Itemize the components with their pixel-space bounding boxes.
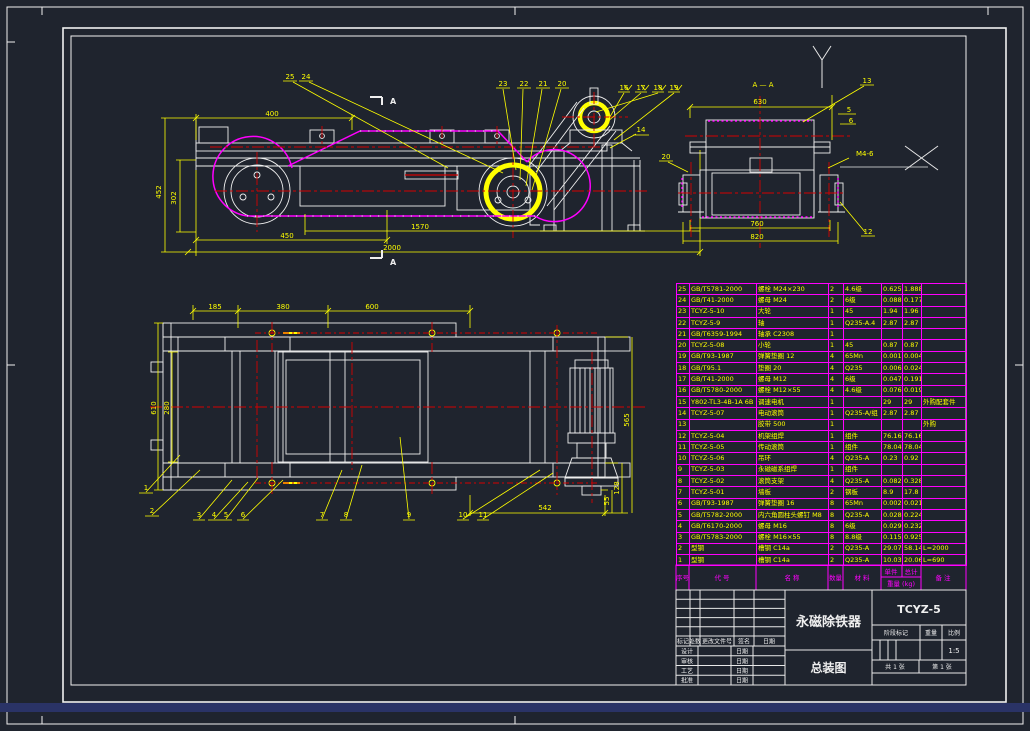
bom-row: 17GB/T41-2000螺母 M1246级0.04770.191: [677, 374, 967, 385]
leader-6: 6: [241, 511, 246, 519]
bom-cell-code: GB/T41-2000: [690, 374, 757, 385]
bom-row: 6GB/T93-1987弹簧垫圈 16865Mn0.002680.02144: [677, 498, 967, 509]
rev-header-mark: 标记: [677, 638, 689, 646]
leader-17: 17: [637, 84, 646, 92]
dim-185: 185: [208, 303, 221, 311]
bom-cell-material: 6级: [844, 521, 882, 532]
title-block-texts: 标记 处数 更改文件号 签名 日期 设计 日期 审核 日期 工艺 日期 批准 日…: [677, 603, 960, 685]
bom-cell-code: GB/T5780-2000: [690, 385, 757, 396]
bom-cell-material: 钢板: [844, 487, 882, 498]
bom-row: 4GB/T6170-2000螺母 M1686级0.0290.232: [677, 521, 967, 532]
bom-cell-total: 0.92: [903, 453, 922, 464]
bom-cell-total: 0.0045: [903, 351, 922, 362]
bom-cell-material: 45: [844, 340, 882, 351]
dim-128: 128: [613, 481, 621, 494]
bom-cell-material: Q235-A: [844, 453, 882, 464]
bom-row: 23TCYZ-5-10大轮1451.941.96: [677, 306, 967, 317]
bom-cell-qty: 4: [829, 363, 844, 374]
rev-header-sign: 签名: [738, 638, 750, 646]
bom-cell-name: 轴: [757, 317, 829, 328]
bom-cell-qty: 8: [829, 509, 844, 520]
bom-cell-code: 型钢: [690, 543, 757, 554]
model-number: TCYZ-5: [897, 603, 941, 616]
bom-cell-remark: [922, 317, 967, 328]
sheet-no: 第 1 张: [932, 663, 952, 671]
bom-cell-unit: 0.00268: [882, 498, 903, 509]
bom-cell-code: Y802-TL3-4B-1A 6B: [690, 396, 757, 407]
bom-cell-remark: [922, 521, 967, 532]
leader-20: 20: [558, 80, 567, 88]
bom-header-material: 材 料: [854, 573, 870, 582]
bom-cell-qty: 1: [829, 408, 844, 419]
bom-cell-unit: 0.23: [882, 453, 903, 464]
bom-row: 3GB/T5783-2000螺栓 M16×5588.8级0.11570.9256: [677, 532, 967, 543]
sign-role-check: 审核: [681, 657, 693, 665]
bom-cell-no: 6: [677, 498, 690, 509]
bom-cell-unit: 0.87: [882, 340, 903, 351]
bom-cell-code: TCYZ-5-06: [690, 453, 757, 464]
bom-cell-no: 2: [677, 543, 690, 554]
bom-cell-code: TCYZ-5-03: [690, 464, 757, 475]
bom-cell-remark: [922, 306, 967, 317]
bom-cell-no: 23: [677, 306, 690, 317]
bom-cell-qty: 1: [829, 430, 844, 441]
bom-cell-no: 10: [677, 453, 690, 464]
bom-cell-remark: [922, 509, 967, 520]
bom-cell-material: 6级: [844, 295, 882, 306]
bom-cell-unit: [882, 329, 903, 340]
dim-bottom-1570: 1570: [411, 223, 429, 231]
bom-cell-material: [844, 396, 882, 407]
bom-cell-material: 组件: [844, 442, 882, 453]
bom-cell-name: 螺栓 M24×230: [757, 284, 829, 295]
leader-20b: 20: [662, 153, 671, 161]
bom-cell-qty: 1: [829, 464, 844, 475]
thread-note: M4-6: [856, 150, 874, 158]
bom-cell-qty: 4: [829, 385, 844, 396]
dim-bottom-2000: 2000: [383, 244, 401, 252]
bom-cell-no: 7: [677, 487, 690, 498]
bom-cell-remark: [922, 442, 967, 453]
leader-23: 23: [499, 80, 508, 88]
bom-cell-total: 0.02144: [903, 498, 922, 509]
bom-cell-name: 弹簧垫圈 12: [757, 351, 829, 362]
bom-cell-name: 螺母 M24: [757, 295, 829, 306]
bom-cell-qty: 1: [829, 317, 844, 328]
stage-label: 阶段标记: [884, 629, 908, 637]
bom-cell-no: 4: [677, 521, 690, 532]
section-letter-top: A: [390, 97, 397, 106]
bom-cell-unit: 0.1157: [882, 532, 903, 543]
bom-cell-no: 17: [677, 374, 690, 385]
bom-cell-total: 0.87: [903, 340, 922, 351]
bom-cell-code: TCYZ-5-04: [690, 430, 757, 441]
dim-6: 6: [849, 117, 854, 125]
bom-cell-total: 58.14: [903, 543, 922, 554]
bom-row: 9TCYZ-5-03永磁磁系组焊1组件: [677, 464, 967, 475]
bom-cell-name: 螺母 M12: [757, 374, 829, 385]
bom-cell-total: 0.328: [903, 476, 922, 487]
bom-cell-no: 15: [677, 396, 690, 407]
sign-date-check: 日期: [736, 657, 748, 665]
bom-cell-no: 5: [677, 509, 690, 520]
bom-cell-name: 弹簧垫圈 16: [757, 498, 829, 509]
bom-cell-total: 76.168: [903, 430, 922, 441]
leader-4: 4: [212, 511, 217, 519]
leader-13: 13: [863, 77, 872, 85]
bom-cell-qty: 1: [829, 419, 844, 430]
plan-view-leader-lines: [139, 437, 553, 520]
bom-cell-qty: 4: [829, 374, 844, 385]
bom-cell-no: 19: [677, 351, 690, 362]
sign-role-process: 工艺: [681, 667, 693, 675]
bom-cell-total: 0.224: [903, 509, 922, 520]
bom-cell-code: GB/T5783-2000: [690, 532, 757, 543]
section-view-geometry: [678, 120, 845, 218]
bom-cell-qty: 4: [829, 351, 844, 362]
leader-24: 24: [302, 73, 311, 81]
bom-cell-remark: [922, 464, 967, 475]
bom-cell-material: [844, 329, 882, 340]
bom-cell-no: 1: [677, 555, 690, 566]
bom-cell-name: 机架组焊: [757, 430, 829, 441]
bom-cell-no: 14: [677, 408, 690, 419]
bom-cell-unit: 2.87: [882, 408, 903, 419]
bom-cell-name: 永磁磁系组焊: [757, 464, 829, 475]
bom-cell-material: 65Mn: [844, 498, 882, 509]
bom-cell-code: GB/T93-1987: [690, 351, 757, 362]
bom-header-total: 总计: [905, 567, 919, 576]
rev-header-date: 日期: [763, 638, 775, 646]
bom-cell-remark: [922, 295, 967, 306]
bom-cell-no: 25: [677, 284, 690, 295]
leader-10: 10: [459, 511, 468, 519]
bom-cell-material: 组件: [844, 430, 882, 441]
dim-610: 610: [150, 401, 158, 414]
drawing-name: 总装图: [810, 660, 846, 675]
leader-2: 2: [150, 507, 154, 515]
bom-cell-qty: 2: [829, 555, 844, 566]
bom-cell-code: TCYZ-5-10: [690, 306, 757, 317]
dim-left-inner: 302: [170, 191, 178, 204]
bom-cell-total: 20.06: [903, 555, 922, 566]
bom-cell-material: Q235-A.4: [844, 317, 882, 328]
bom-header-remark: 备 注: [935, 573, 951, 582]
bom-table: 25GB/T5781-2000螺栓 M24×23024.6级0.6251.888…: [676, 283, 967, 566]
bom-cell-qty: 8: [829, 498, 844, 509]
bom-row: 12TCYZ-5-04机架组焊1组件76.16876.168: [677, 430, 967, 441]
bom-cell-unit: 0.028: [882, 509, 903, 520]
bom-cell-material: 4.6级: [844, 284, 882, 295]
bom-cell-no: 16: [677, 385, 690, 396]
bom-row: 16GB/T5780-2000螺栓 M12×5544.6级0.0760.019: [677, 385, 967, 396]
bom-cell-name: 胶带 500: [757, 419, 829, 430]
bom-cell-unit: 29: [882, 396, 903, 407]
bom-cell-remark: [922, 476, 967, 487]
bom-cell-unit: 76.168: [882, 430, 903, 441]
bom-cell-qty: 8: [829, 521, 844, 532]
bom-cell-code: [690, 419, 757, 430]
bom-row: 2型钢槽钢 C14a2Q235-A29.0758.14L=2000: [677, 543, 967, 554]
bom-cell-remark: [922, 340, 967, 351]
bom-cell-no: 8: [677, 476, 690, 487]
section-letter-bottom: A: [390, 258, 397, 267]
bom-cell-unit: 0.076: [882, 385, 903, 396]
bom-cell-total: 0.191: [903, 374, 922, 385]
bom-cell-remark: [922, 385, 967, 396]
bom-cell-unit: 0.006: [882, 363, 903, 374]
cad-sheet: 400 452 302 450 1570 2000 25 24 23 22 21…: [0, 0, 1030, 731]
bom-cell-no: 12: [677, 430, 690, 441]
bom-cell-total: [903, 419, 922, 430]
dim-820: 820: [750, 233, 763, 241]
bom-cell-no: 3: [677, 532, 690, 543]
bom-cell-name: 小轮: [757, 340, 829, 351]
bom-row: 5GB/T5782-2000内六角圆柱头螺钉 M88Q235-A0.0280.2…: [677, 509, 967, 520]
bom-cell-remark: [922, 532, 967, 543]
bom-cell-material: 8.8级: [844, 532, 882, 543]
product-name: 永磁除铁器: [795, 614, 862, 630]
bom-cell-material: Q235-A: [844, 509, 882, 520]
bom-cell-remark: [922, 498, 967, 509]
bom-header-name: 名 称: [784, 573, 800, 582]
bom-cell-name: 内六角圆柱头螺钉 M8: [757, 509, 829, 520]
bom-cell-code: TCYZ-5-02: [690, 476, 757, 487]
bom-cell-qty: 1: [829, 340, 844, 351]
bom-row: 24GB/T41-2000螺母 M2426级0.08880.1776: [677, 295, 967, 306]
section-view-texts: A — A 630 5 6 760 820 13 20 12 M4-6: [662, 77, 874, 241]
bom-cell-qty: 2: [829, 284, 844, 295]
dim-565: 565: [623, 413, 631, 426]
bom-cell-name: 螺母 M16: [757, 521, 829, 532]
dim-542: 542: [538, 504, 551, 512]
leader-3: 3: [197, 511, 201, 519]
weight-label: 重量: [925, 629, 937, 637]
bom-cell-unit: 78.045: [882, 442, 903, 453]
bom-row: 22TCYZ-5-9轴1Q235-A.42.872.87: [677, 317, 967, 328]
bom-cell-total: 1.96: [903, 306, 922, 317]
bom-cell-name: 轴承 C2308: [757, 329, 829, 340]
bom-cell-no: 22: [677, 317, 690, 328]
rev-header-doc: 更改文件号: [702, 638, 732, 646]
bom-cell-material: 6级: [844, 374, 882, 385]
leader-9: 9: [407, 511, 411, 519]
bom-cell-remark: 外购配套件: [922, 396, 967, 407]
dim-top: 400: [265, 110, 278, 118]
bom-cell-remark: [922, 408, 967, 419]
bom-cell-material: Q235-A: [844, 555, 882, 566]
bom-cell-code: TCYZ-5-08: [690, 340, 757, 351]
bom-row: 7TCYZ-5-01墙板2钢板8.917.8: [677, 487, 967, 498]
bom-cell-qty: 2: [829, 543, 844, 554]
bom-cell-remark: 外购: [922, 419, 967, 430]
bom-cell-qty: 8: [829, 532, 844, 543]
bom-row: 14TCYZ-5-07电动滚筒1Q235-A/组2.872.87: [677, 408, 967, 419]
leader-5: 5: [224, 511, 228, 519]
leader-12: 12: [864, 228, 873, 236]
bom-cell-qty: 1: [829, 442, 844, 453]
bom-cell-material: [844, 419, 882, 430]
leader-1: 1: [144, 484, 148, 492]
leader-8: 8: [344, 511, 348, 519]
side-view-section-marks: [370, 97, 382, 258]
bom-cell-material: 4.6级: [844, 385, 882, 396]
bom-row: 10TCYZ-5-06吊环4Q235-A0.230.92: [677, 453, 967, 464]
bom-row: 1型钢槽钢 C14a2Q235-A10.0320.06L=690: [677, 555, 967, 566]
leader-19: 19: [670, 84, 679, 92]
bom-cell-name: 槽钢 C14a: [757, 555, 829, 566]
bom-cell-material: 65Mn: [844, 351, 882, 362]
y-mark-icon: [813, 46, 831, 88]
bom-cell-material: Q235-A: [844, 543, 882, 554]
x-mark-icon: [905, 146, 938, 170]
leader-22: 22: [520, 80, 529, 88]
bom-body: 25GB/T5781-2000螺栓 M24×23024.6级0.6251.888…: [677, 284, 967, 566]
bom-cell-material: 组件: [844, 464, 882, 475]
sign-date-design: 日期: [736, 648, 748, 656]
bom-cell-remark: [922, 329, 967, 340]
scale-label: 比例: [948, 629, 960, 637]
bom-cell-total: 0.9256: [903, 532, 922, 543]
bom-cell-name: 电动滚筒: [757, 408, 829, 419]
bom-cell-unit: 0.625: [882, 284, 903, 295]
scale-value: 1:5: [948, 647, 959, 655]
bom-header-no: 序号: [676, 573, 690, 582]
bom-row: 25GB/T5781-2000螺栓 M24×23024.6级0.6251.888: [677, 284, 967, 295]
sign-role-approve: 批准: [681, 677, 693, 685]
bom-cell-no: 24: [677, 295, 690, 306]
bom-cell-remark: L=690: [922, 555, 967, 566]
leader-16: 16: [620, 84, 629, 92]
dim-55: 55: [603, 497, 611, 506]
dim-5: 5: [847, 106, 851, 114]
bom-header-unit: 单件: [885, 567, 899, 576]
sheet-total: 共 1 张: [885, 663, 905, 671]
bom-cell-material: Q235-A/组: [844, 408, 882, 419]
bom-cell-remark: [922, 351, 967, 362]
bom-cell-name: 吊环: [757, 453, 829, 464]
bom-cell-unit: [882, 419, 903, 430]
bom-row: 13胶带 5001外购: [677, 419, 967, 430]
bom-cell-material: Q235-A: [844, 476, 882, 487]
bom-cell-total: 78.045: [903, 442, 922, 453]
bom-cell-qty: 4: [829, 453, 844, 464]
bom-cell-total: 0.019: [903, 385, 922, 396]
bom-cell-unit: 0.0888: [882, 295, 903, 306]
sign-role-design: 设计: [681, 648, 693, 656]
bom-cell-material: Q235: [844, 363, 882, 374]
bom-cell-name: 大轮: [757, 306, 829, 317]
bom-cell-material: 45: [844, 306, 882, 317]
bom-row: 8TCYZ-5-02滚筒支架4Q235-A0.0820.328: [677, 476, 967, 487]
bom-cell-remark: [922, 453, 967, 464]
bom-cell-code: TCYZ-5-07: [690, 408, 757, 419]
dim-600: 600: [365, 303, 378, 311]
bottom-blue-bar: [0, 703, 1030, 712]
bom-row: 18GB/T95.1垫圈 204Q2350.0060.024: [677, 363, 967, 374]
bom-cell-name: 螺栓 M16×55: [757, 532, 829, 543]
bom-cell-total: [903, 329, 922, 340]
bom-cell-remark: [922, 374, 967, 385]
bom-cell-code: GB/T6170-2000: [690, 521, 757, 532]
bom-cell-unit: 0.029: [882, 521, 903, 532]
bom-cell-total: 2.87: [903, 408, 922, 419]
bom-row: 11TCYZ-5-05传动滚筒1组件78.04578.045: [677, 442, 967, 453]
bom-cell-unit: 2.87: [882, 317, 903, 328]
leader-7: 7: [320, 511, 324, 519]
bom-cell-remark: L=2000: [922, 543, 967, 554]
section-title: A — A: [752, 81, 773, 89]
bom-cell-total: 0.024: [903, 363, 922, 374]
bom-cell-qty: 1: [829, 306, 844, 317]
sign-date-process: 日期: [736, 667, 748, 675]
side-view-geometry: [196, 88, 645, 231]
bom-header-qty: 数量: [829, 573, 843, 582]
bom-cell-unit: 0.082: [882, 476, 903, 487]
bom-cell-code: GB/T95.1: [690, 363, 757, 374]
bom-cell-name: 墙板: [757, 487, 829, 498]
sign-date-approve: 日期: [736, 677, 748, 685]
bom-cell-name: 螺栓 M12×55: [757, 385, 829, 396]
bom-cell-qty: 2: [829, 295, 844, 306]
bom-cell-name: 垫圈 20: [757, 363, 829, 374]
bom-cell-remark: [922, 284, 967, 295]
plan-view-geometry: [151, 323, 630, 495]
dim-bottom-450: 450: [280, 232, 293, 240]
bom-cell-no: 18: [677, 363, 690, 374]
bom-row: 19GB/T93-1987弹簧垫圈 12465Mn0.001110.0045: [677, 351, 967, 362]
leader-18: 18: [654, 84, 663, 92]
leader-11: 11: [479, 511, 488, 519]
bom-cell-unit: 1.94: [882, 306, 903, 317]
bom-cell-name: 槽钢 C14a: [757, 543, 829, 554]
bom-cell-name: 滚筒支架: [757, 476, 829, 487]
bom-cell-unit: [882, 464, 903, 475]
bom-cell-unit: 29.07: [882, 543, 903, 554]
bom-row: 20TCYZ-5-08小轮1450.870.87: [677, 340, 967, 351]
bom-cell-no: 13: [677, 419, 690, 430]
bom-cell-qty: 1: [829, 396, 844, 407]
leader-14: 14: [637, 126, 646, 134]
bom-cell-no: 9: [677, 464, 690, 475]
bom-cell-code: GB/T5782-2000: [690, 509, 757, 520]
bom-cell-code: GB/T93-1987: [690, 498, 757, 509]
bom-cell-code: GB/T5781-2000: [690, 284, 757, 295]
bom-cell-total: 0.1776: [903, 295, 922, 306]
bom-cell-unit: 0.0477: [882, 374, 903, 385]
bom-cell-code: GB/T41-2000: [690, 295, 757, 306]
bom-cell-unit: 10.03: [882, 555, 903, 566]
bom-cell-unit: 8.9: [882, 487, 903, 498]
bom-cell-name: 调速电机: [757, 396, 829, 407]
bom-cell-code: TCYZ-5-05: [690, 442, 757, 453]
bom-cell-remark: [922, 430, 967, 441]
bom-cell-total: 17.8: [903, 487, 922, 498]
dim-630: 630: [753, 98, 766, 106]
bom-cell-code: GB/T6359-1994: [690, 329, 757, 340]
bom-cell-code: 型钢: [690, 555, 757, 566]
bom-cell-remark: [922, 363, 967, 374]
dim-380: 380: [276, 303, 289, 311]
bom-row: 15Y802-TL3-4B-1A 6B调速电机12929外购配套件: [677, 396, 967, 407]
bom-row: 21GB/T6359-1994轴承 C23081: [677, 329, 967, 340]
bom-cell-total: 1.888: [903, 284, 922, 295]
leader-25: 25: [286, 73, 295, 81]
bom-cell-unit: 0.00111: [882, 351, 903, 362]
dim-280: 280: [163, 401, 171, 414]
dim-left-outer: 452: [155, 185, 163, 198]
rev-header-count: 处数: [689, 638, 701, 646]
